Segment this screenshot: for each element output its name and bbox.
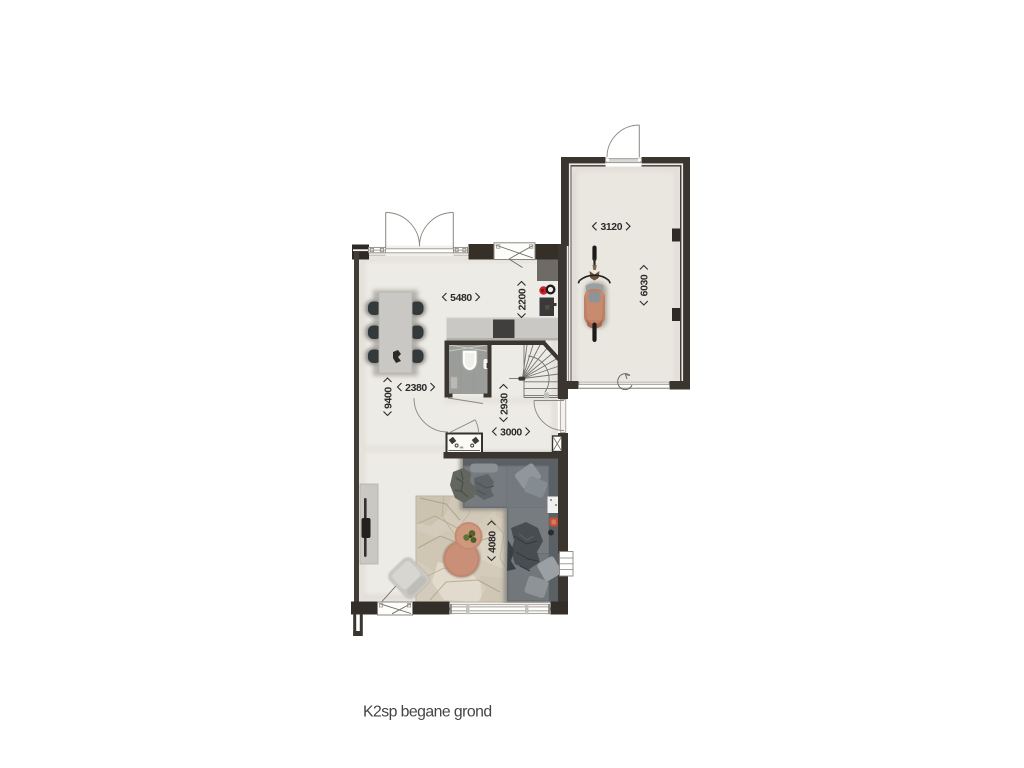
svg-text:3120: 3120 (600, 222, 622, 233)
svg-text:4080: 4080 (487, 531, 498, 553)
svg-text:K2sp begane grond: K2sp begane grond (363, 704, 492, 721)
svg-text:3000: 3000 (500, 427, 522, 438)
svg-text:2380: 2380 (405, 383, 427, 394)
svg-text:6030: 6030 (640, 274, 651, 296)
svg-text:2930: 2930 (499, 393, 510, 415)
svg-text:9400: 9400 (383, 387, 394, 409)
svg-text:5480: 5480 (450, 293, 472, 304)
svg-text:2200: 2200 (517, 288, 528, 310)
